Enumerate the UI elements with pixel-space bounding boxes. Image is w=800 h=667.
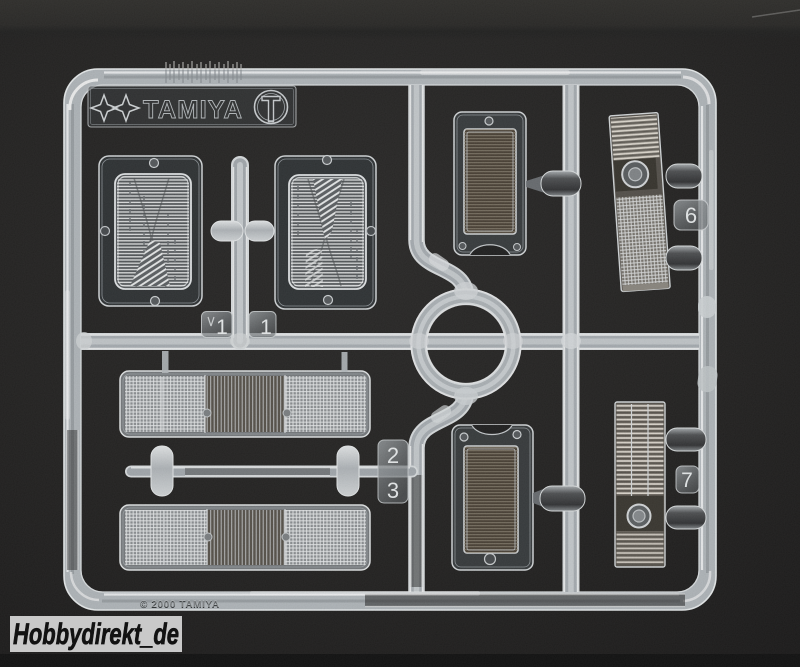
svg-text:Hobbydirekt_de: Hobbydirekt_de xyxy=(13,618,179,651)
